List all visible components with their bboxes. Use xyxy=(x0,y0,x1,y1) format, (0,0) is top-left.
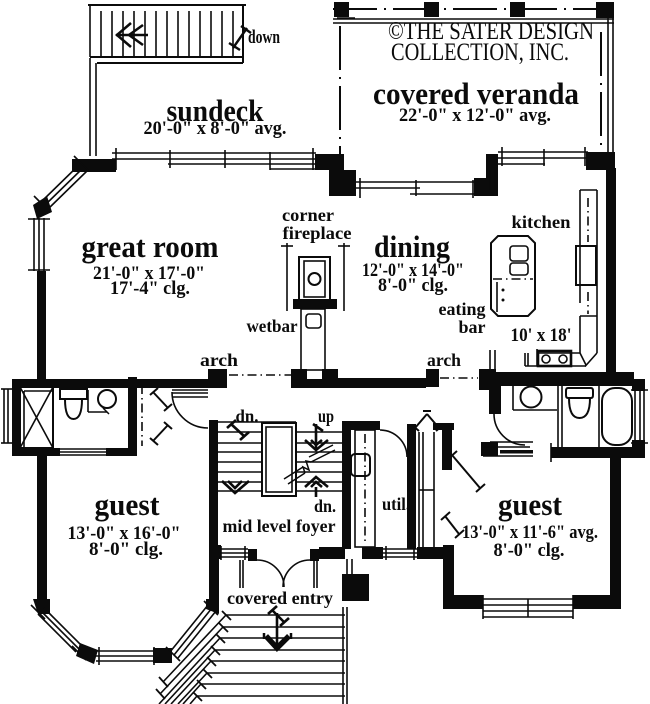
svg-text:17'-4" clg.: 17'-4" clg. xyxy=(110,278,190,299)
svg-text:8'-0" clg.: 8'-0" clg. xyxy=(378,275,448,296)
svg-text:guest: guest xyxy=(95,487,161,522)
svg-text:down: down xyxy=(248,27,280,48)
svg-text:22'-0" x 12'-0" avg.: 22'-0" x 12'-0" avg. xyxy=(399,105,551,126)
svg-text:arch: arch xyxy=(200,350,238,370)
svg-text:guest: guest xyxy=(498,487,563,522)
svg-text:8'-0" clg.: 8'-0" clg. xyxy=(89,539,163,560)
svg-text:8'-0" clg.: 8'-0" clg. xyxy=(494,540,565,561)
svg-text:arch: arch xyxy=(427,350,461,370)
svg-text:dn.: dn. xyxy=(314,496,336,516)
svg-text:covered entry: covered entry xyxy=(227,588,333,608)
svg-text:dining: dining xyxy=(374,229,450,264)
svg-text:great room: great room xyxy=(82,229,219,264)
svg-text:bar: bar xyxy=(459,317,486,337)
svg-text:kitchen: kitchen xyxy=(512,212,571,232)
svg-text:util.: util. xyxy=(382,494,410,514)
svg-text:wetbar: wetbar xyxy=(247,316,298,336)
svg-text:corner: corner xyxy=(282,205,334,225)
svg-text:10' x 18': 10' x 18' xyxy=(511,325,572,346)
svg-text:up: up xyxy=(318,406,334,426)
svg-text:20'-0" x 8'-0" avg.: 20'-0" x 8'-0" avg. xyxy=(144,118,287,139)
svg-text:dn.: dn. xyxy=(236,406,259,426)
svg-text:mid level foyer: mid level foyer xyxy=(223,516,336,536)
svg-text:eating: eating xyxy=(439,299,486,319)
svg-text:COLLECTION, INC.: COLLECTION, INC. xyxy=(391,39,569,66)
svg-text:fireplace: fireplace xyxy=(283,223,352,243)
